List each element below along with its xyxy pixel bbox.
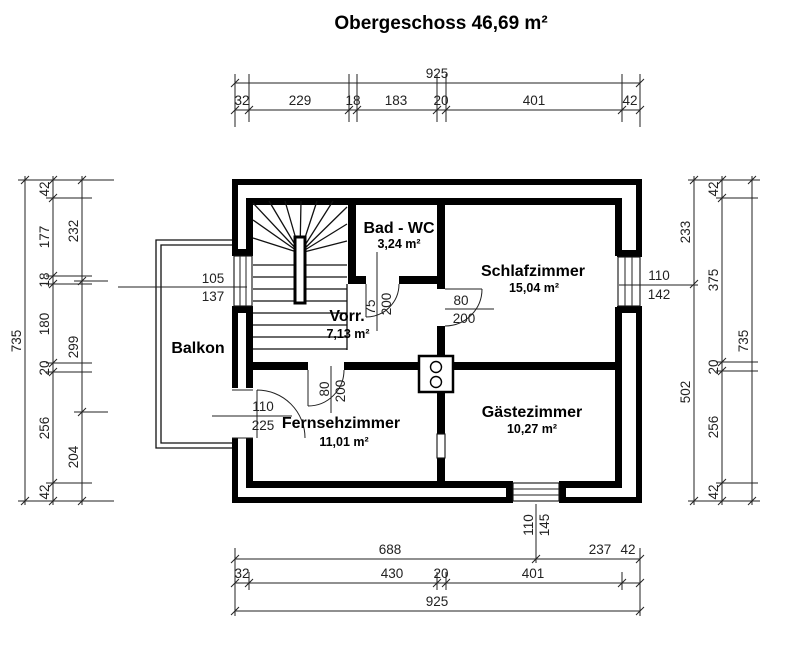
door-bad-height: 200 bbox=[379, 293, 394, 316]
dim-left-wall-0: 42 bbox=[37, 181, 52, 196]
door-schlafzimmer-height: 200 bbox=[453, 311, 476, 326]
room-label-vorraum: Vorr. bbox=[329, 308, 364, 325]
dim-bottom-r1-1: 237 bbox=[589, 542, 612, 557]
dim-bottom-r2-3: 401 bbox=[522, 566, 545, 581]
window-schlafzimmer-height: 142 bbox=[648, 287, 671, 302]
dim-top-seg-2: 18 bbox=[345, 93, 360, 108]
dim-top-seg-0: 32 bbox=[234, 93, 249, 108]
dim-left-inner-2: 204 bbox=[66, 445, 81, 468]
door-balkon-height: 225 bbox=[252, 418, 275, 433]
door-fernsehzimmer-width: 80 bbox=[317, 381, 332, 396]
dim-bottom-total: 925 bbox=[426, 594, 449, 609]
dim-bottom-r2-2: 20 bbox=[433, 566, 448, 581]
dim-left-wall-4: 20 bbox=[37, 360, 52, 375]
dim-top-seg-4: 20 bbox=[433, 93, 448, 108]
room-area-vorraum: 7,13 m² bbox=[326, 327, 369, 341]
page-title: Obergeschoss 46,69 m² bbox=[334, 13, 547, 34]
dim-right-inner-1: 502 bbox=[678, 381, 693, 404]
dim-right-wall-4: 42 bbox=[706, 484, 721, 499]
dim-top-seg-3: 183 bbox=[385, 93, 408, 108]
dim-chain-left: 735 42 177 18 180 20 256 42 232 299 204 bbox=[9, 176, 114, 505]
window-stair: 105 137 bbox=[118, 249, 253, 313]
dim-chain-top: 925 32 229 18 183 20 401 42 bbox=[231, 66, 644, 127]
dim-top-seg-1: 229 bbox=[289, 93, 312, 108]
dim-right-total: 735 bbox=[736, 330, 751, 353]
window-stair-width: 105 bbox=[202, 271, 225, 286]
floorplan-page: Obergeschoss 46,69 m² 925 32 229 18 183 … bbox=[0, 0, 793, 648]
dim-right-wall-2: 20 bbox=[706, 359, 721, 374]
window-gaestezimmer-width: 110 bbox=[521, 514, 536, 536]
dim-left-inner-1: 299 bbox=[66, 336, 81, 359]
dim-top-seg-6: 42 bbox=[622, 93, 637, 108]
dim-right-wall-3: 256 bbox=[706, 416, 721, 439]
room-area-fernsehzimmer: 11,01 m² bbox=[319, 435, 368, 449]
chimney-flue-2 bbox=[431, 377, 442, 388]
dim-chain-bottom: 688 237 42 32 430 20 401 925 bbox=[231, 538, 644, 616]
dim-right-wall-0: 42 bbox=[706, 181, 721, 196]
room-area-schlafzimmer: 15,04 m² bbox=[509, 281, 559, 295]
window-schlafzimmer-width: 110 bbox=[648, 268, 670, 283]
room-label-fernsehzimmer: Fernsehzimmer bbox=[282, 415, 400, 432]
dim-left-wall-6: 42 bbox=[37, 484, 52, 499]
dim-left-inner-0: 232 bbox=[66, 220, 81, 243]
window-stair-height: 137 bbox=[202, 289, 225, 304]
room-area-bad-wc: 3,24 m² bbox=[377, 237, 420, 251]
dim-top-total: 925 bbox=[426, 66, 449, 81]
passage-fernseh-gaeste bbox=[437, 434, 445, 458]
door-balkon-width: 110 bbox=[252, 399, 274, 414]
dim-bottom-r2-0: 32 bbox=[234, 566, 249, 581]
dim-left-wall-2: 18 bbox=[37, 272, 52, 287]
dim-left-total: 735 bbox=[9, 330, 24, 353]
room-label-gaestezimmer: Gästezimmer bbox=[482, 404, 583, 421]
stair-newel bbox=[295, 237, 305, 303]
dim-right-inner-0: 233 bbox=[678, 221, 693, 244]
dim-top-seg-5: 401 bbox=[523, 93, 546, 108]
door-fernsehzimmer: 80 200 bbox=[308, 366, 348, 413]
room-label-bad-wc: Bad - WC bbox=[363, 220, 435, 237]
dim-right-wall-1: 375 bbox=[706, 269, 721, 292]
dim-left-wall-3: 180 bbox=[37, 313, 52, 336]
door-fernsehzimmer-height: 200 bbox=[333, 380, 348, 403]
door-schlafzimmer-width: 80 bbox=[453, 293, 468, 308]
chimney-flue-1 bbox=[431, 362, 442, 373]
room-label-schlafzimmer: Schlafzimmer bbox=[481, 263, 585, 280]
dim-left-wall-1: 177 bbox=[37, 226, 52, 249]
dim-bottom-r1-0: 688 bbox=[379, 542, 402, 557]
room-label-balkon: Balkon bbox=[171, 340, 224, 357]
room-labels: Bad - WC 3,24 m² Schlafzimmer 15,04 m² V… bbox=[282, 220, 585, 449]
dim-chain-right: 233 502 42 375 20 256 42 735 bbox=[678, 176, 760, 505]
dim-bottom-r2-1: 430 bbox=[381, 566, 404, 581]
window-schlafzimmer: 110 142 bbox=[617, 250, 698, 313]
window-gaestezimmer: 110 145 bbox=[506, 481, 566, 547]
dim-bottom-r1-2: 42 bbox=[620, 542, 635, 557]
door-schlafzimmer: 80 200 bbox=[445, 289, 494, 326]
door-bad-width: 75 bbox=[363, 299, 378, 314]
door-bad-wc: 75 200 bbox=[363, 252, 399, 331]
dim-left-wall-5: 256 bbox=[37, 417, 52, 440]
room-area-gaestezimmer: 10,27 m² bbox=[507, 422, 557, 436]
chimney bbox=[419, 356, 453, 392]
window-gaestezimmer-height: 145 bbox=[537, 514, 552, 537]
floorplan-drawing: Obergeschoss 46,69 m² 925 32 229 18 183 … bbox=[0, 0, 793, 648]
